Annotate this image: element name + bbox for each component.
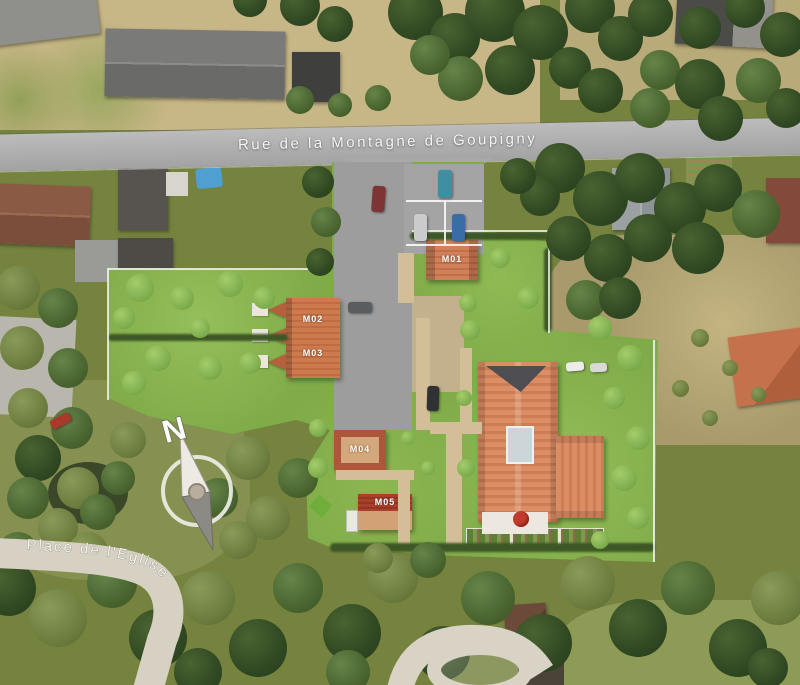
- tree: [198, 478, 238, 518]
- tree: [29, 589, 87, 647]
- tree: [751, 571, 800, 625]
- property-boundary-line: [548, 243, 550, 333]
- car: [452, 214, 465, 241]
- building-label: M04: [334, 444, 386, 454]
- tree: [317, 6, 353, 42]
- tree: [672, 380, 689, 397]
- footpath: [398, 470, 410, 545]
- tree: [627, 507, 649, 529]
- building-label: M01: [426, 254, 478, 264]
- neighbor-shed: [166, 172, 188, 196]
- building-main-extension: [556, 436, 604, 518]
- tree: [87, 558, 137, 608]
- tree: [460, 320, 480, 340]
- main-road-name: Rue de la Montagne de Goupigny: [238, 130, 538, 153]
- gable-wing: [268, 354, 286, 370]
- tree: [617, 345, 643, 371]
- footpath: [446, 430, 462, 548]
- tree: [626, 426, 650, 450]
- tree: [363, 543, 393, 573]
- neighbor-building: [104, 28, 285, 99]
- tree: [309, 419, 327, 437]
- tree: [217, 271, 243, 297]
- building-label: M03: [286, 348, 340, 358]
- tree: [7, 477, 49, 519]
- neighbor-pool: [195, 167, 223, 190]
- tree: [766, 88, 800, 128]
- tree: [38, 288, 78, 328]
- tree: [640, 50, 680, 90]
- car: [348, 302, 372, 313]
- tree: [751, 387, 766, 402]
- building-M04: M04: [334, 430, 386, 470]
- tree: [0, 266, 40, 310]
- skylight: [506, 426, 534, 464]
- tree: [416, 626, 470, 680]
- tree: [8, 388, 48, 428]
- tree: [239, 352, 261, 374]
- tree: [679, 7, 721, 49]
- tree: [485, 45, 535, 95]
- tree: [328, 93, 352, 117]
- tree: [609, 599, 667, 657]
- tree: [546, 216, 591, 261]
- tree: [113, 307, 135, 329]
- parking-line: [406, 244, 482, 246]
- white-vehicle: [346, 510, 358, 532]
- tree: [661, 561, 715, 615]
- parking-line: [444, 200, 446, 244]
- hedge: [410, 232, 548, 240]
- tree: [122, 371, 146, 395]
- car: [590, 363, 607, 373]
- car: [371, 186, 386, 213]
- property-boundary-line: [412, 230, 548, 232]
- tree: [584, 234, 632, 282]
- tree: [15, 435, 61, 481]
- building-M02-M03: M02 M03: [286, 298, 340, 378]
- property-boundary-line: [653, 340, 655, 562]
- tree: [457, 459, 475, 477]
- tree: [190, 318, 210, 338]
- tree: [500, 158, 536, 194]
- tree: [630, 88, 670, 128]
- tree: [226, 436, 270, 480]
- tree: [760, 12, 800, 57]
- tree: [253, 287, 275, 309]
- tree: [732, 190, 780, 238]
- tree: [48, 348, 88, 388]
- tree: [80, 494, 116, 530]
- tree: [110, 422, 146, 458]
- footpath: [460, 348, 472, 430]
- tree: [722, 360, 738, 376]
- tree: [174, 648, 222, 685]
- tree: [702, 410, 718, 426]
- tree: [514, 614, 572, 672]
- tree: [308, 458, 328, 478]
- tree: [603, 387, 625, 409]
- tree: [126, 274, 154, 302]
- tree: [490, 248, 510, 268]
- tree: [578, 68, 623, 113]
- footpath: [398, 253, 414, 303]
- tree: [229, 619, 287, 677]
- tree: [691, 329, 709, 347]
- aerial-site-plan-map: Rue de la Montagne de Goupigny M01 M02 M…: [0, 0, 800, 685]
- tree: [410, 542, 446, 578]
- tree: [0, 326, 44, 370]
- tree: [459, 294, 477, 312]
- tree: [410, 35, 450, 75]
- tree: [421, 461, 435, 475]
- tree: [219, 521, 257, 559]
- property-boundary-line: [107, 268, 109, 400]
- tree: [181, 571, 235, 625]
- car: [427, 386, 440, 411]
- tree: [698, 96, 743, 141]
- tree: [286, 86, 314, 114]
- property-boundary-line: [108, 268, 332, 270]
- tree: [748, 648, 788, 685]
- tree: [628, 0, 673, 37]
- tree: [591, 531, 609, 549]
- parasol: [513, 511, 529, 527]
- tree: [101, 461, 135, 495]
- tree: [306, 248, 334, 276]
- tree: [672, 222, 724, 274]
- car: [566, 361, 585, 372]
- tree: [611, 465, 637, 491]
- neighbor-house-brown-roof: [0, 183, 91, 246]
- tree: [561, 556, 615, 610]
- tree: [456, 390, 472, 406]
- tree: [302, 166, 334, 198]
- tree: [198, 356, 222, 380]
- tree: [599, 277, 641, 319]
- car: [414, 214, 427, 241]
- tree: [311, 207, 341, 237]
- tree: [170, 286, 194, 310]
- tree: [145, 345, 171, 371]
- tree: [517, 287, 539, 309]
- footpath: [416, 318, 430, 430]
- building-label: M02: [286, 314, 340, 324]
- building-M01: M01: [426, 240, 478, 280]
- tree: [365, 85, 391, 111]
- tree: [273, 563, 323, 613]
- tree: [461, 571, 515, 625]
- car: [438, 170, 452, 198]
- neighbor-building: [118, 168, 168, 230]
- tree: [401, 431, 415, 445]
- tree: [588, 316, 612, 340]
